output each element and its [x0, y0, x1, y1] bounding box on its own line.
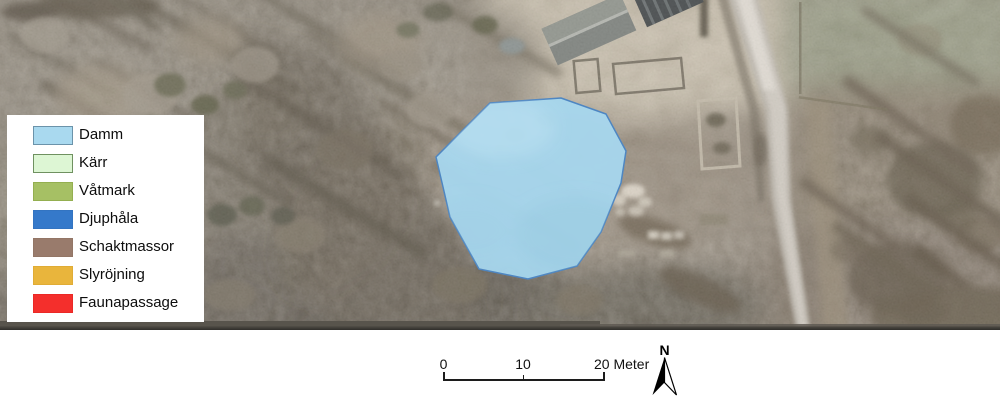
svg-text:N: N — [659, 342, 669, 358]
